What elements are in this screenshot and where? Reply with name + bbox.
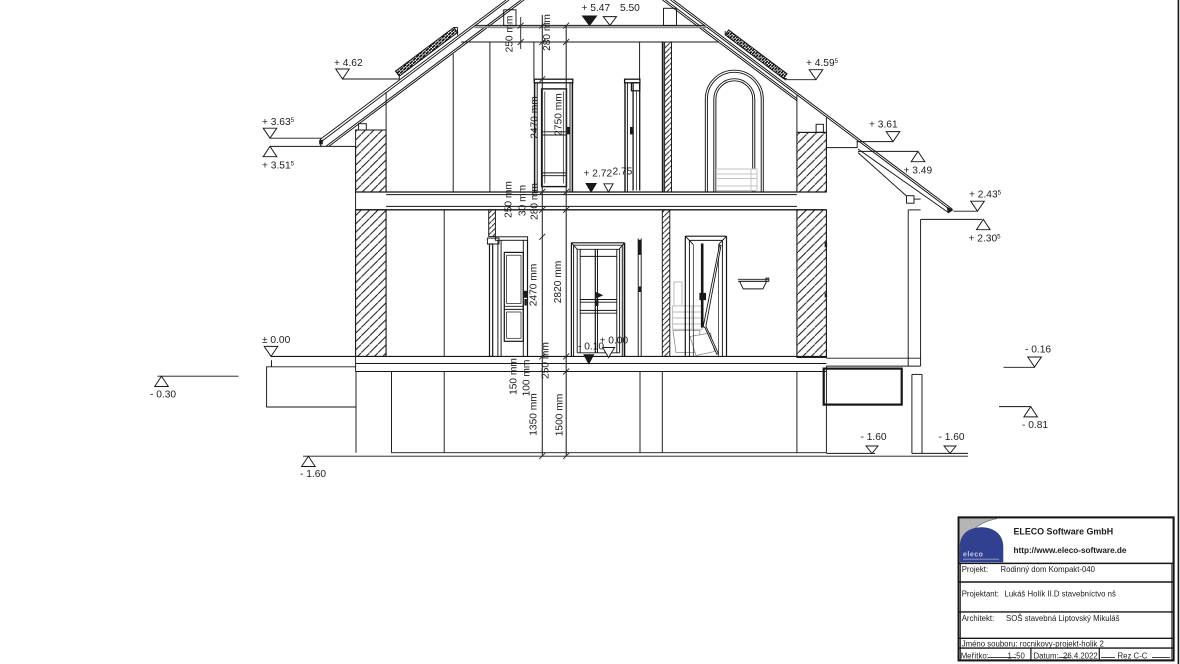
svg-text:- 0.10: - 0.10 (578, 342, 604, 353)
svg-text:Rodinný dom Kompakt-040: Rodinný dom Kompakt-040 (1001, 565, 1096, 574)
svg-text:- 0.30: - 0.30 (150, 390, 176, 401)
svg-text:1500 mm: 1500 mm (555, 394, 566, 436)
svg-text:Architekt:: Architekt: (962, 614, 995, 623)
svg-text:Projekt:: Projekt: (962, 565, 988, 574)
svg-text:30 mm: 30 mm (518, 185, 529, 216)
svg-text:Jméno souboru: rocnikovy-proje: Jméno souboru: rocnikovy-projekt-holik 2 (962, 640, 1104, 649)
svg-text:280 mm: 280 mm (542, 14, 553, 51)
svg-text:± 0.00: ± 0.00 (262, 335, 291, 346)
svg-text:+ 3.61: + 3.61 (869, 120, 898, 131)
svg-text:- 1.60: - 1.60 (939, 432, 965, 443)
svg-text:+ 2.72: + 2.72 (584, 169, 613, 180)
svg-text:+ 2.305: + 2.305 (969, 234, 1002, 245)
svg-text:- 1.60: - 1.60 (861, 432, 887, 443)
svg-text:+ 5.47: + 5.47 (582, 3, 611, 14)
svg-text:http://www.eleco-software.de: http://www.eleco-software.de (1014, 546, 1127, 555)
svg-text:Rez C-C: Rez C-C (1118, 651, 1148, 660)
svg-text:SOŠ stavebná Liptovský Mikuláš: SOŠ stavebná Liptovský Mikuláš (1006, 614, 1120, 623)
svg-text:100 mm: 100 mm (522, 360, 533, 397)
svg-text:Datum:: Datum: (1034, 651, 1059, 660)
svg-text:2470 mm: 2470 mm (528, 264, 539, 306)
svg-text:eleco: eleco (963, 552, 983, 559)
svg-text:2750 mm: 2750 mm (554, 93, 565, 135)
svg-text:280 mm: 280 mm (530, 183, 541, 220)
svg-text:2470 mm: 2470 mm (530, 96, 541, 138)
svg-text:1350 mm: 1350 mm (529, 393, 540, 435)
svg-text:26.4.2022: 26.4.2022 (1063, 651, 1098, 660)
svg-text:2.75: 2.75 (613, 167, 633, 178)
svg-text:+ 4.62: + 4.62 (334, 58, 363, 69)
svg-text:2820 mm: 2820 mm (553, 261, 564, 303)
svg-text:ELECO Software GmbH: ELECO Software GmbH (1014, 527, 1114, 537)
svg-text:150 mm: 150 mm (509, 358, 520, 395)
svg-text:+ 3.635: + 3.635 (262, 117, 295, 128)
svg-text:- 0.81: - 0.81 (1022, 420, 1048, 431)
svg-text:Lukáš Holík II.D stavebníctvo: Lukáš Holík II.D stavebníctvo nš (1005, 589, 1116, 598)
svg-text:5.50: 5.50 (620, 3, 640, 14)
svg-text:Meřítko:: Meřítko: (961, 651, 989, 660)
svg-text:+ 3.515: + 3.515 (262, 161, 295, 172)
svg-text:- 1.60: - 1.60 (300, 469, 326, 480)
svg-text:250 mm: 250 mm (504, 181, 515, 218)
svg-text:1 :50: 1 :50 (1008, 651, 1026, 660)
svg-text:250 mm: 250 mm (541, 342, 552, 379)
svg-text:+ 3.49: + 3.49 (904, 166, 933, 177)
svg-text:Projektant:: Projektant: (962, 589, 999, 598)
svg-text:+ 4.595: + 4.595 (806, 58, 839, 69)
svg-text:- 0.16: - 0.16 (1025, 345, 1051, 356)
svg-text:250 mm: 250 mm (505, 16, 516, 53)
svg-text:+ 2.435: + 2.435 (969, 190, 1002, 201)
